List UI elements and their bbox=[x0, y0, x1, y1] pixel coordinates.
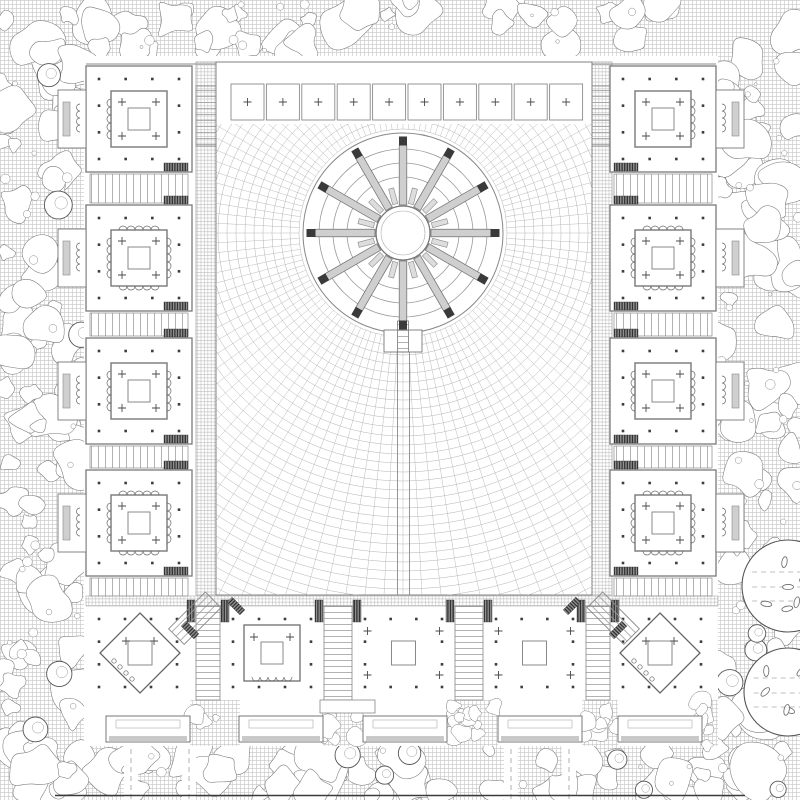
column-dot bbox=[124, 430, 127, 433]
small-plant-circle bbox=[556, 40, 560, 44]
column-dot bbox=[124, 217, 127, 220]
annex-room bbox=[716, 229, 744, 287]
column-dot bbox=[702, 297, 705, 300]
column-dot bbox=[622, 270, 625, 273]
small-plant-circle bbox=[737, 601, 746, 610]
tree-symbol bbox=[770, 781, 786, 797]
small-plant-circle bbox=[23, 210, 30, 217]
column-dot bbox=[648, 78, 651, 81]
stair-band bbox=[90, 578, 188, 596]
column-dot bbox=[495, 618, 498, 621]
strip-stair-box bbox=[196, 86, 216, 146]
column-dot bbox=[546, 686, 549, 689]
vent-block bbox=[164, 329, 188, 337]
column-dot bbox=[98, 78, 101, 81]
column-dot bbox=[648, 482, 651, 485]
column-dot bbox=[389, 686, 392, 689]
column-dot bbox=[702, 562, 705, 565]
column-dot bbox=[622, 663, 625, 666]
shrub-blob bbox=[479, 780, 506, 800]
column-dot bbox=[389, 618, 392, 621]
annex-room bbox=[58, 90, 86, 148]
column-dot bbox=[98, 243, 101, 246]
column-dot bbox=[702, 104, 705, 107]
small-plant-circle bbox=[726, 304, 732, 310]
small-plant-circle bbox=[46, 609, 52, 615]
column-dot bbox=[178, 270, 181, 273]
column-dot bbox=[178, 403, 181, 406]
small-plant-circle bbox=[229, 35, 238, 44]
small-plant-circle bbox=[755, 479, 764, 488]
small-plant-circle bbox=[551, 8, 559, 16]
small-plant-circle bbox=[49, 324, 57, 332]
column-dot bbox=[310, 618, 313, 621]
vent-block bbox=[614, 329, 638, 337]
column-dot bbox=[176, 663, 179, 666]
small-plant-circle bbox=[718, 763, 727, 772]
column-dot bbox=[648, 350, 651, 353]
column-dot bbox=[124, 297, 127, 300]
column-dot bbox=[648, 297, 651, 300]
small-platform bbox=[320, 700, 375, 713]
small-plant-circle bbox=[735, 457, 741, 463]
vent-block bbox=[614, 567, 638, 575]
small-plant-circle bbox=[778, 755, 784, 761]
column-dot bbox=[178, 158, 181, 161]
small-plant-circle bbox=[745, 92, 750, 97]
column-dot bbox=[622, 535, 625, 538]
stair-band bbox=[614, 578, 712, 596]
column-dot bbox=[284, 618, 287, 621]
column-dot bbox=[702, 243, 705, 246]
small-plant-circle bbox=[262, 48, 266, 52]
plan-canvas bbox=[0, 0, 800, 800]
site-plan bbox=[0, 0, 800, 800]
column-dot bbox=[98, 350, 101, 353]
small-plant-circle bbox=[238, 2, 244, 8]
small-plant-circle bbox=[31, 192, 40, 201]
arcade-stair-band bbox=[455, 606, 483, 700]
column-dot bbox=[702, 403, 705, 406]
small-plant-circle bbox=[140, 45, 143, 48]
column-dot bbox=[310, 663, 313, 666]
arcade-stair-band bbox=[324, 606, 352, 700]
plan-root bbox=[0, 0, 800, 800]
column-dot bbox=[178, 430, 181, 433]
inner-court bbox=[244, 625, 300, 681]
bench-shadow bbox=[501, 736, 579, 741]
small-plant-circle bbox=[773, 367, 779, 373]
vent-block bbox=[614, 302, 638, 310]
column-dot bbox=[151, 158, 154, 161]
small-plant-circle bbox=[0, 174, 10, 184]
column-dot bbox=[178, 350, 181, 353]
small-plant-circle bbox=[62, 173, 72, 183]
column-dot bbox=[675, 482, 678, 485]
column-dot bbox=[674, 618, 677, 621]
shrub-blob bbox=[694, 776, 724, 800]
vent-block bbox=[614, 435, 638, 443]
annex-room bbox=[716, 90, 744, 148]
column-dot bbox=[622, 686, 625, 689]
small-plant-circle bbox=[639, 765, 643, 769]
column-dot bbox=[232, 686, 235, 689]
column-dot bbox=[572, 618, 575, 621]
column-dot bbox=[622, 243, 625, 246]
vent-block bbox=[164, 435, 188, 443]
small-plant-circle bbox=[29, 256, 38, 265]
column-dot bbox=[98, 104, 101, 107]
column-dot bbox=[622, 482, 625, 485]
garden-path bbox=[124, 746, 138, 800]
column-dot bbox=[702, 350, 705, 353]
column-dot bbox=[441, 618, 444, 621]
small-plant-circle bbox=[148, 753, 154, 759]
column-dot bbox=[675, 297, 678, 300]
small-plant-circle bbox=[747, 184, 754, 191]
vent-block bbox=[164, 196, 188, 204]
column-dot bbox=[675, 430, 678, 433]
column-dot bbox=[151, 78, 154, 81]
small-plant-circle bbox=[70, 703, 76, 709]
vent-block bbox=[353, 600, 361, 622]
column-dot bbox=[178, 131, 181, 134]
column-dot bbox=[232, 618, 235, 621]
small-plant-circle bbox=[238, 41, 247, 50]
small-plant-circle bbox=[776, 135, 782, 141]
column-dot bbox=[674, 686, 677, 689]
fountain-spoke-block bbox=[399, 321, 407, 330]
column-dot bbox=[648, 430, 651, 433]
column-dot bbox=[415, 618, 418, 621]
column-dot bbox=[702, 430, 705, 433]
fountain-spoke bbox=[315, 229, 375, 237]
small-plant-circle bbox=[157, 767, 167, 777]
small-plant-circle bbox=[7, 640, 12, 645]
column-dot bbox=[648, 158, 651, 161]
column-dot bbox=[572, 640, 575, 643]
column-dot bbox=[178, 535, 181, 538]
shrub-blob bbox=[614, 26, 647, 52]
small-plant-circle bbox=[793, 481, 800, 490]
column-dot bbox=[700, 618, 703, 621]
column-dot bbox=[178, 297, 181, 300]
column-dot bbox=[178, 243, 181, 246]
column-dot bbox=[258, 618, 261, 621]
annex-room bbox=[58, 362, 86, 420]
column-dot bbox=[441, 686, 444, 689]
column-dot bbox=[124, 158, 127, 161]
vent-block bbox=[484, 600, 492, 622]
column-dot bbox=[546, 618, 549, 621]
column-dot bbox=[124, 350, 127, 353]
column-dot bbox=[520, 686, 523, 689]
garden-path bbox=[504, 746, 518, 800]
column-dot bbox=[98, 482, 101, 485]
fountain-spoke bbox=[431, 229, 491, 237]
column-dot bbox=[675, 158, 678, 161]
small-plant-circle bbox=[736, 182, 742, 188]
column-dot bbox=[124, 618, 127, 621]
column-dot bbox=[622, 297, 625, 300]
column-dot bbox=[622, 403, 625, 406]
small-plant-circle bbox=[779, 415, 787, 423]
fountain-spoke bbox=[399, 261, 407, 321]
column-dot bbox=[98, 508, 101, 511]
bench-shadow bbox=[621, 736, 699, 741]
small-plant-circle bbox=[277, 3, 284, 10]
small-plant-circle bbox=[32, 151, 37, 156]
annex-room bbox=[58, 229, 86, 287]
column-dot bbox=[700, 640, 703, 643]
column-dot bbox=[495, 663, 498, 666]
column-dot bbox=[415, 686, 418, 689]
column-dot bbox=[310, 640, 313, 643]
column-dot bbox=[702, 158, 705, 161]
column-dot bbox=[176, 686, 179, 689]
column-dot bbox=[520, 618, 523, 621]
column-dot bbox=[648, 618, 651, 621]
column-dot bbox=[98, 270, 101, 273]
column-dot bbox=[648, 217, 651, 220]
column-dot bbox=[700, 686, 703, 689]
arcade-bay bbox=[232, 618, 313, 689]
tree-symbol bbox=[23, 717, 48, 742]
shrub-blob bbox=[22, 515, 37, 528]
vent-block bbox=[164, 302, 188, 310]
annex-room bbox=[716, 494, 744, 552]
column-dot bbox=[178, 78, 181, 81]
vent-block bbox=[614, 196, 638, 204]
vent-block bbox=[315, 600, 323, 622]
small-plant-circle bbox=[687, 764, 691, 768]
column-dot bbox=[98, 403, 101, 406]
column-dot bbox=[702, 131, 705, 134]
small-plant-circle bbox=[744, 381, 749, 386]
tree-symbol bbox=[44, 191, 72, 219]
column-dot bbox=[364, 663, 367, 666]
tree-symbol bbox=[748, 625, 766, 643]
column-dot bbox=[98, 535, 101, 538]
small-plant-circle bbox=[145, 36, 155, 46]
column-dot bbox=[622, 430, 625, 433]
small-plant-circle bbox=[773, 58, 779, 64]
small-plant-circle bbox=[749, 419, 753, 423]
shrub-blob bbox=[203, 754, 237, 782]
column-dot bbox=[151, 562, 154, 565]
column-dot bbox=[178, 104, 181, 107]
small-plant-circle bbox=[754, 83, 757, 86]
small-plant-circle bbox=[68, 462, 74, 468]
small-plant-circle bbox=[670, 781, 674, 785]
tree-symbol bbox=[375, 766, 393, 784]
small-plant-circle bbox=[531, 14, 534, 17]
column-dot bbox=[622, 508, 625, 511]
garden-path bbox=[182, 746, 196, 800]
column-dot bbox=[622, 158, 625, 161]
column-dot bbox=[98, 663, 101, 666]
column-dot bbox=[622, 78, 625, 81]
small-plant-circle bbox=[628, 8, 636, 16]
column-dot bbox=[178, 508, 181, 511]
column-dot bbox=[702, 376, 705, 379]
bench-shadow bbox=[366, 736, 444, 741]
column-dot bbox=[178, 376, 181, 379]
column-dot bbox=[232, 663, 235, 666]
column-dot bbox=[98, 618, 101, 621]
column-dot bbox=[702, 270, 705, 273]
column-dot bbox=[622, 562, 625, 565]
column-dot bbox=[151, 217, 154, 220]
column-dot bbox=[98, 640, 101, 643]
vent-block bbox=[164, 461, 188, 469]
column-dot bbox=[702, 78, 705, 81]
small-plant-circle bbox=[300, 0, 309, 9]
column-dot bbox=[572, 663, 575, 666]
column-dot bbox=[176, 640, 179, 643]
column-dot bbox=[675, 78, 678, 81]
vent-block bbox=[164, 163, 188, 171]
column-dot bbox=[284, 686, 287, 689]
column-dot bbox=[702, 482, 705, 485]
column-dot bbox=[124, 482, 127, 485]
column-dot bbox=[310, 686, 313, 689]
column-dot bbox=[178, 482, 181, 485]
column-dot bbox=[675, 217, 678, 220]
column-dot bbox=[675, 350, 678, 353]
column-dot bbox=[258, 686, 261, 689]
small-plant-circle bbox=[31, 541, 40, 550]
small-plant-circle bbox=[768, 292, 772, 296]
column-dot bbox=[150, 686, 153, 689]
vent-block bbox=[221, 600, 229, 622]
small-plant-circle bbox=[20, 566, 26, 572]
vent-block bbox=[446, 600, 454, 622]
column-dot bbox=[495, 686, 498, 689]
fountain-spoke-block bbox=[491, 229, 500, 237]
column-dot bbox=[232, 640, 235, 643]
garden-path bbox=[562, 746, 576, 800]
column-dot bbox=[648, 562, 651, 565]
column-dot bbox=[124, 78, 127, 81]
column-dot bbox=[364, 640, 367, 643]
small-plant-circle bbox=[519, 781, 527, 789]
column-dot bbox=[178, 562, 181, 565]
column-dot bbox=[700, 663, 703, 666]
column-dot bbox=[151, 350, 154, 353]
annex-room bbox=[58, 494, 86, 552]
column-dot bbox=[151, 430, 154, 433]
small-plant-circle bbox=[389, 24, 395, 30]
small-plant-circle bbox=[29, 628, 38, 637]
column-dot bbox=[622, 350, 625, 353]
fountain-spoke bbox=[399, 145, 407, 205]
column-dot bbox=[702, 508, 705, 511]
small-plant-circle bbox=[380, 748, 385, 753]
small-plant-circle bbox=[782, 150, 787, 155]
column-dot bbox=[124, 562, 127, 565]
column-dot bbox=[178, 217, 181, 220]
fountain-hub bbox=[376, 206, 430, 260]
column-dot bbox=[622, 104, 625, 107]
tree-symbol bbox=[47, 661, 72, 686]
column-dot bbox=[98, 686, 101, 689]
column-dot bbox=[364, 618, 367, 621]
column-dot bbox=[441, 663, 444, 666]
column-dot bbox=[98, 217, 101, 220]
small-plant-circle bbox=[12, 81, 17, 86]
column-dot bbox=[675, 562, 678, 565]
column-dot bbox=[98, 297, 101, 300]
column-dot bbox=[622, 217, 625, 220]
small-plant-circle bbox=[781, 519, 786, 524]
fountain-spoke-block bbox=[307, 229, 316, 237]
small-plant-circle bbox=[71, 424, 76, 429]
strip-stair-box bbox=[592, 86, 612, 146]
column-dot bbox=[151, 297, 154, 300]
column-dot bbox=[702, 535, 705, 538]
column-dot bbox=[151, 482, 154, 485]
bench-shadow bbox=[242, 736, 320, 741]
fountain-spoke-block bbox=[399, 137, 407, 146]
small-plant-circle bbox=[74, 613, 80, 619]
small-plant-circle bbox=[17, 649, 27, 659]
column-dot bbox=[495, 640, 498, 643]
column-dot bbox=[702, 217, 705, 220]
tree-symbol bbox=[608, 750, 627, 769]
column-dot bbox=[572, 686, 575, 689]
column-dot bbox=[98, 430, 101, 433]
vent-block bbox=[614, 163, 638, 171]
arcade-grid-band bbox=[86, 596, 718, 606]
column-dot bbox=[98, 131, 101, 134]
column-dot bbox=[124, 686, 127, 689]
vent-block bbox=[164, 567, 188, 575]
tree-symbol bbox=[717, 670, 743, 696]
column-dot bbox=[364, 686, 367, 689]
annex-room bbox=[716, 362, 744, 420]
column-dot bbox=[441, 640, 444, 643]
bench-shadow bbox=[109, 736, 187, 741]
column-dot bbox=[98, 562, 101, 565]
column-dot bbox=[648, 686, 651, 689]
small-plant-circle bbox=[23, 557, 33, 567]
column-dot bbox=[98, 376, 101, 379]
column-dot bbox=[98, 158, 101, 161]
column-dot bbox=[622, 376, 625, 379]
small-plant-circle bbox=[765, 379, 775, 389]
column-dot bbox=[622, 131, 625, 134]
column-dot bbox=[150, 618, 153, 621]
tree-symbol bbox=[37, 64, 60, 87]
vent-block bbox=[614, 461, 638, 469]
